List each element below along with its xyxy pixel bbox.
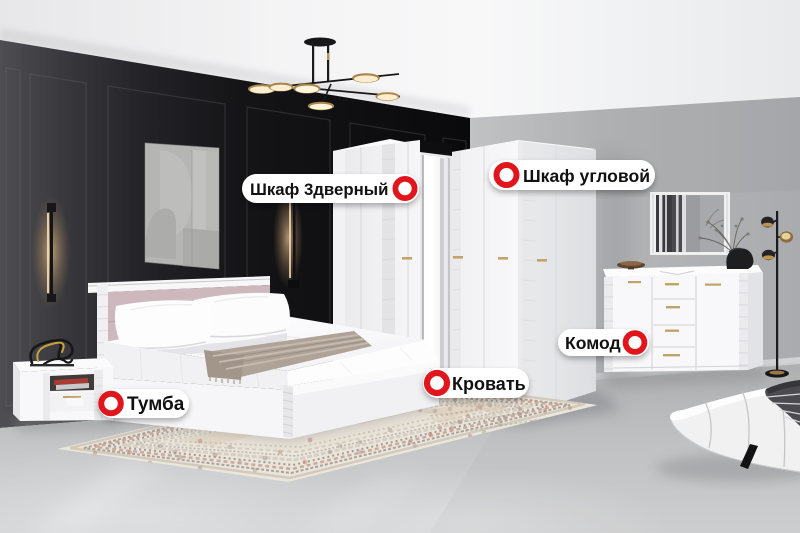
svg-text:Комод: Комод: [565, 333, 621, 353]
svg-text:Кровать: Кровать: [452, 374, 526, 394]
svg-text:Тумба: Тумба: [127, 394, 185, 415]
svg-text:Шкаф угловой: Шкаф угловой: [523, 166, 650, 186]
svg-text:Шкаф 3дверный: Шкаф 3дверный: [250, 180, 388, 199]
